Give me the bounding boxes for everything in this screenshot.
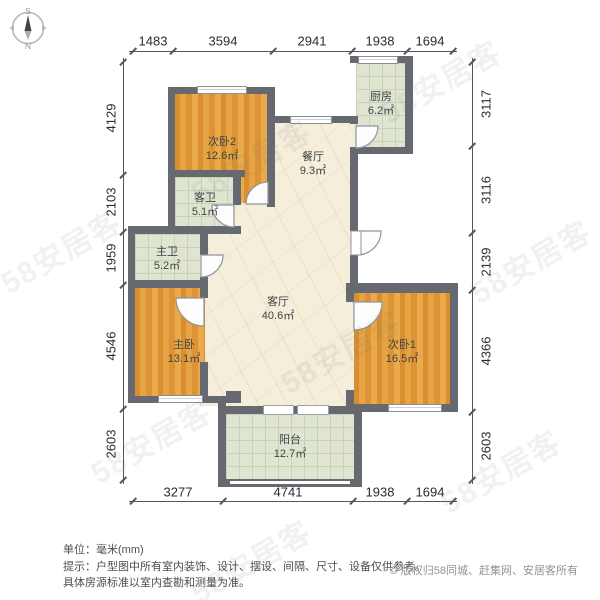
unit-note: 单位：毫米(mm)	[63, 542, 144, 558]
dim-label: 1959	[104, 244, 119, 273]
dim-label: 4129	[104, 104, 119, 133]
room-name: 主卫	[156, 245, 178, 259]
room-label-living: 客厅 40.6㎡	[262, 295, 294, 323]
room-area: 9.3㎡	[300, 164, 326, 178]
room-label-bedroom2: 次卧2 12.6㎡	[206, 135, 238, 163]
room-label-kitchen: 厨房 6.2㎡	[368, 90, 394, 118]
compass-north-label: N	[25, 41, 31, 51]
room-area: 5.2㎡	[154, 259, 180, 273]
room-label-master-bath: 主卫 5.2㎡	[154, 245, 180, 273]
compass-south-label: S	[25, 6, 31, 16]
room-area: 12.6㎡	[206, 149, 238, 163]
room-area: 6.2㎡	[368, 104, 394, 118]
disclaimer-line1: 提示：户型图中所有室内装饰、设计、摆设、间隔、尺寸、设备仅供参考。	[63, 559, 426, 575]
room-name: 客卫	[194, 191, 216, 205]
compass-needle-north	[25, 31, 32, 40]
dim-label: 2139	[479, 248, 494, 277]
dim-label: 3116	[479, 176, 494, 204]
room-name: 次卧2	[208, 135, 236, 149]
dim-label: 2941	[298, 34, 327, 49]
dim-label: 4546	[104, 332, 119, 361]
entry-door-leaf	[351, 231, 361, 255]
dim-label: 4741	[274, 485, 303, 500]
master-bedroom-door-arc	[176, 298, 204, 326]
room-area: 16.5㎡	[386, 352, 418, 366]
room-name: 次卧1	[388, 338, 416, 352]
dim-line-left	[123, 58, 124, 484]
room-label-master-bedroom: 主卧 13.1㎡	[168, 338, 200, 366]
master-bath-door-arc	[201, 255, 223, 277]
dim-label: 3277	[164, 485, 193, 500]
dim-label: 3117	[479, 90, 494, 118]
room-name: 主卧	[173, 338, 195, 352]
disclaimer-line2: 具体房源标准以室内查勘和测量为准。	[63, 575, 250, 591]
door-arcs-layer	[0, 0, 600, 600]
dim-line-right	[472, 58, 473, 484]
dim-label: 1483	[139, 34, 168, 49]
room-name: 阳台	[279, 433, 301, 447]
room-label-dining: 餐厅 9.3㎡	[300, 150, 326, 178]
dim-label: 2603	[104, 430, 119, 459]
dim-label: 1694	[416, 485, 445, 500]
room-area: 40.6㎡	[262, 309, 294, 323]
room-label-balcony: 阳台 12.7㎡	[274, 433, 306, 461]
dim-label: 1694	[416, 34, 445, 49]
dim-label: 1938	[366, 34, 395, 49]
compass-west-arrow	[9, 26, 14, 31]
room-name: 客厅	[267, 295, 289, 309]
room-area: 5.1㎡	[192, 205, 218, 219]
compass-east-arrow	[42, 26, 47, 31]
floorplan-canvas: 58安居客 58安居客 58安居客 58安居客 58安居客 58安居客 58安居…	[0, 0, 600, 600]
dim-label: 4366	[479, 337, 494, 366]
compass-needle-south	[25, 15, 32, 31]
kitchen-door-arc	[356, 126, 378, 148]
room-label-bedroom1: 次卧1 16.5㎡	[386, 338, 418, 366]
room-area: 12.7㎡	[274, 447, 306, 461]
copyright-text: © 版权归58同城、赶集网、安居客所有	[390, 562, 578, 578]
room-name: 餐厅	[302, 150, 324, 164]
dim-label: 1938	[366, 485, 395, 500]
compass-icon: S N	[6, 4, 50, 52]
dim-label: 3594	[209, 34, 238, 49]
room-name: 厨房	[370, 90, 392, 104]
room-label-guest-bath: 客卫 5.1㎡	[192, 191, 218, 219]
dim-label: 2103	[104, 188, 119, 217]
room-area: 13.1㎡	[168, 352, 200, 366]
dim-label: 2603	[479, 432, 494, 461]
